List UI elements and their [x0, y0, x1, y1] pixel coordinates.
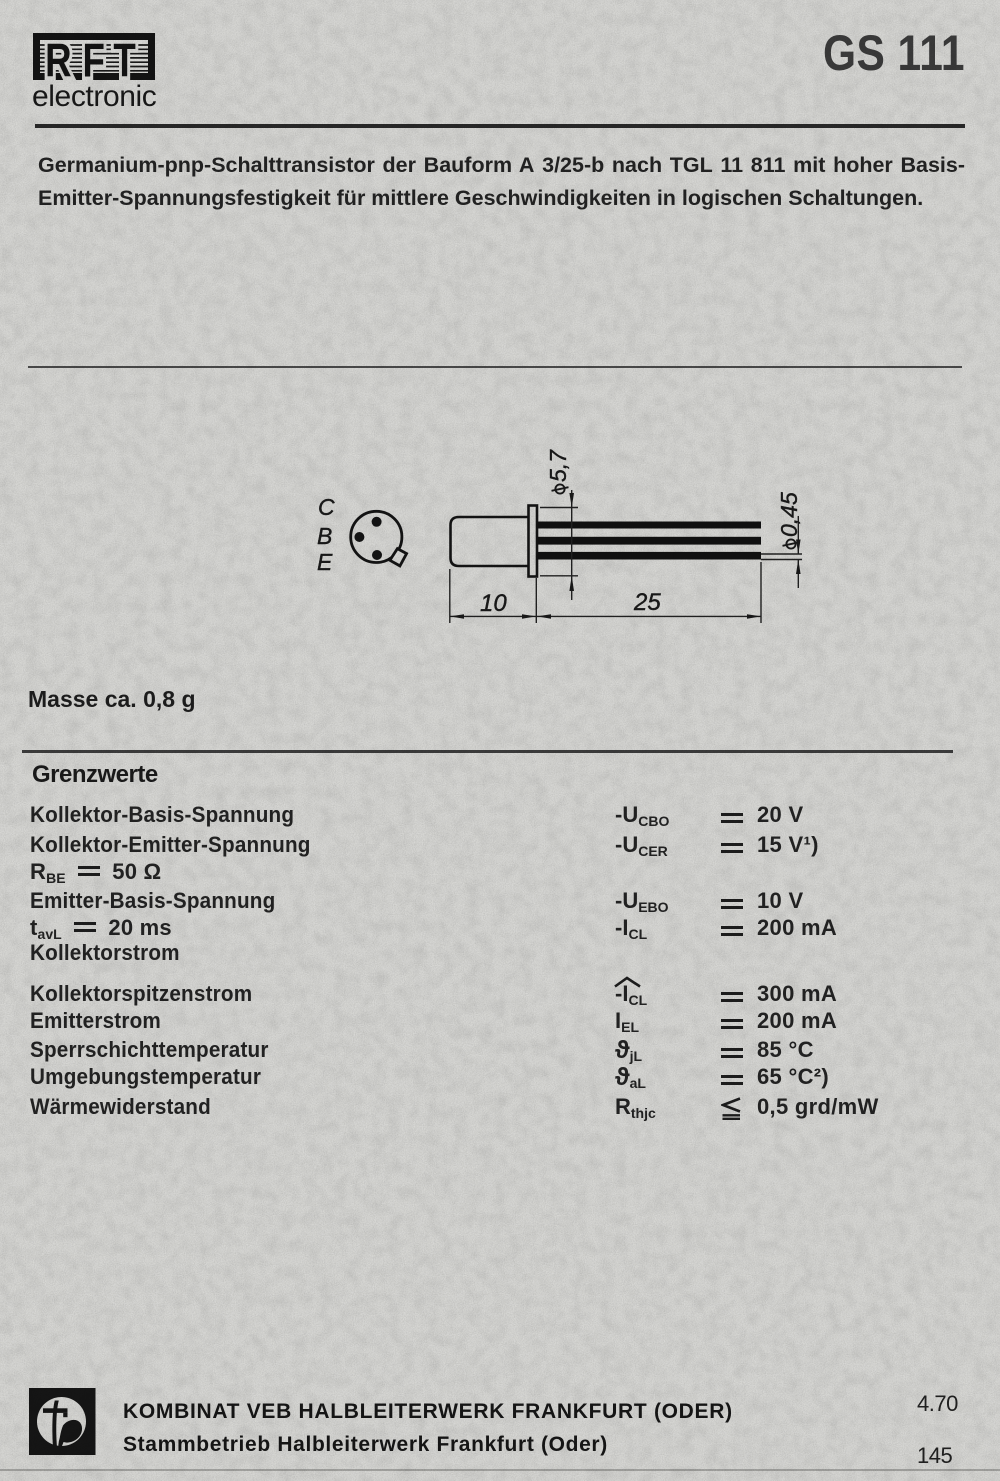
svg-text:0,45: 0,45 — [776, 492, 802, 537]
svg-text:B: B — [317, 523, 332, 549]
svg-text:10: 10 — [480, 590, 507, 617]
svg-text:C: C — [318, 494, 335, 520]
svg-text:T: T — [113, 34, 136, 80]
svg-text:25: 25 — [633, 589, 661, 616]
svg-text:5,7: 5,7 — [545, 449, 571, 482]
svg-text:F: F — [83, 34, 105, 80]
svg-text:R: R — [45, 34, 71, 80]
svg-text:E: E — [317, 549, 333, 575]
